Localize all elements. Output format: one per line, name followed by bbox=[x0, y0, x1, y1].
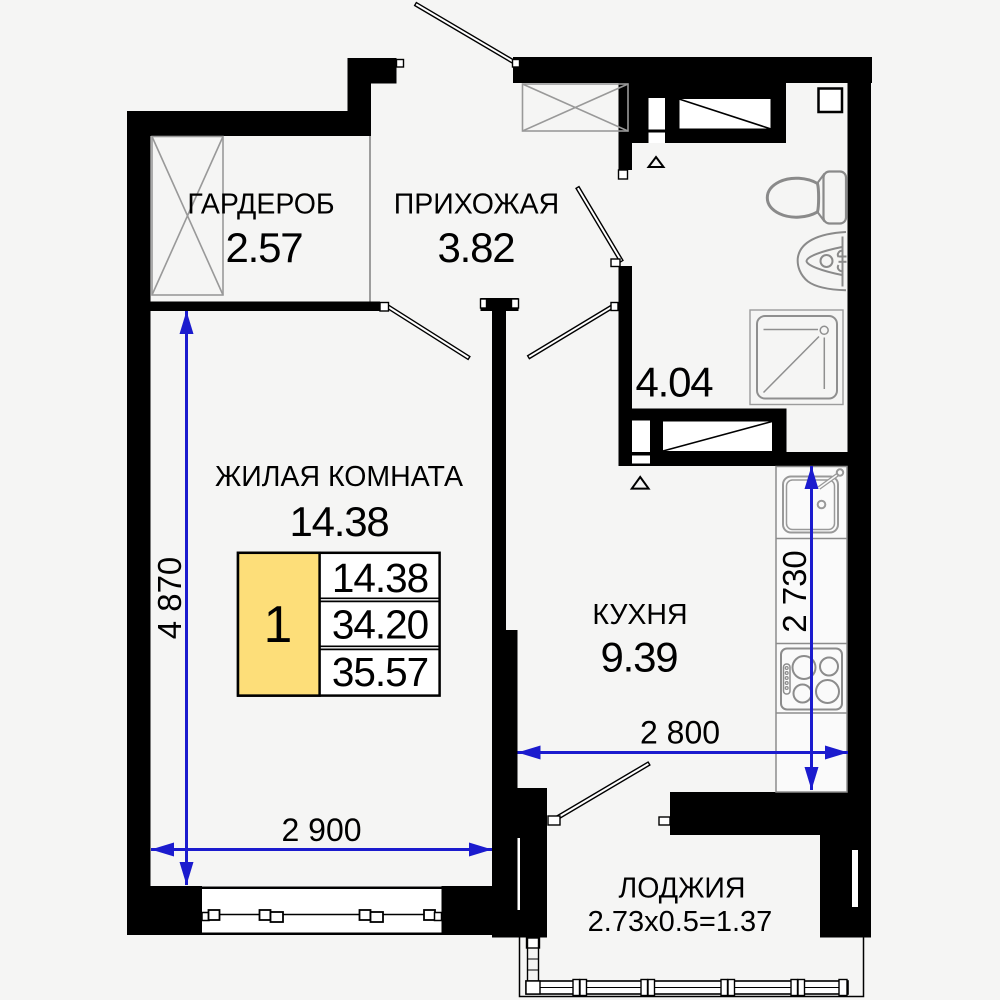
svg-text:2.57: 2.57 bbox=[226, 224, 303, 271]
svg-text:КУХНЯ: КУХНЯ bbox=[592, 599, 687, 631]
svg-text:9.39: 9.39 bbox=[601, 633, 678, 680]
svg-text:2.73x0.5=1.37: 2.73x0.5=1.37 bbox=[588, 906, 773, 938]
svg-text:ГАРДЕРОБ: ГАРДЕРОБ bbox=[187, 189, 334, 221]
svg-text:35.57: 35.57 bbox=[332, 649, 428, 695]
svg-text:4 870: 4 870 bbox=[151, 557, 188, 640]
svg-text:3.82: 3.82 bbox=[438, 224, 515, 271]
svg-text:34.20: 34.20 bbox=[332, 602, 428, 648]
svg-text:ПРИХОЖАЯ: ПРИХОЖАЯ bbox=[394, 189, 560, 221]
svg-text:2 900: 2 900 bbox=[281, 812, 361, 848]
svg-text:ЖИЛАЯ КОМНАТА: ЖИЛАЯ КОМНАТА bbox=[215, 461, 463, 493]
svg-text:ЛОДЖИЯ: ЛОДЖИЯ bbox=[619, 873, 746, 905]
svg-text:1: 1 bbox=[264, 595, 293, 653]
svg-text:2 730: 2 730 bbox=[776, 550, 813, 633]
svg-text:14.38: 14.38 bbox=[332, 555, 428, 601]
svg-text:2 800: 2 800 bbox=[640, 715, 720, 751]
svg-text:4.04: 4.04 bbox=[636, 359, 714, 406]
svg-text:14.38: 14.38 bbox=[289, 498, 388, 545]
